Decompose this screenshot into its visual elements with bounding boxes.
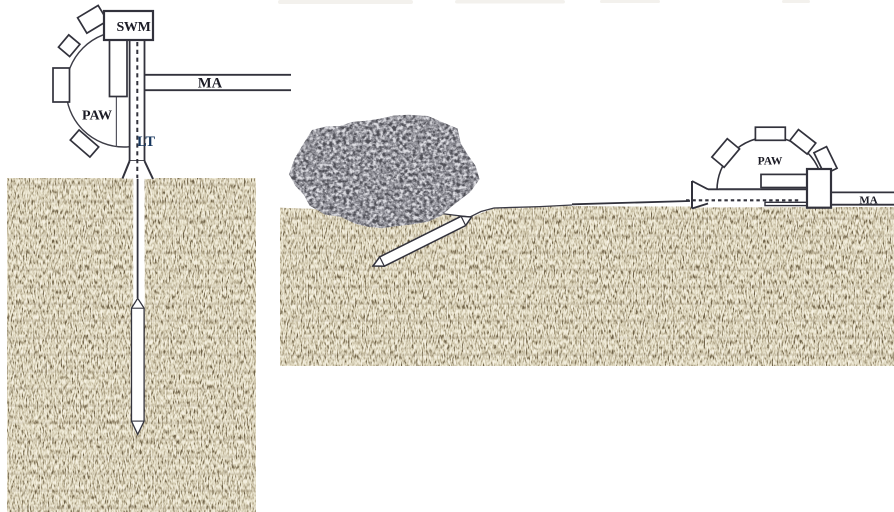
svg-text:PAW: PAW — [82, 109, 112, 124]
svg-text:PAW: PAW — [758, 156, 783, 168]
svg-text:SWM: SWM — [116, 20, 150, 35]
svg-text:LT: LT — [137, 134, 155, 150]
svg-text:MA: MA — [198, 76, 223, 92]
svg-text:MA: MA — [859, 195, 877, 207]
